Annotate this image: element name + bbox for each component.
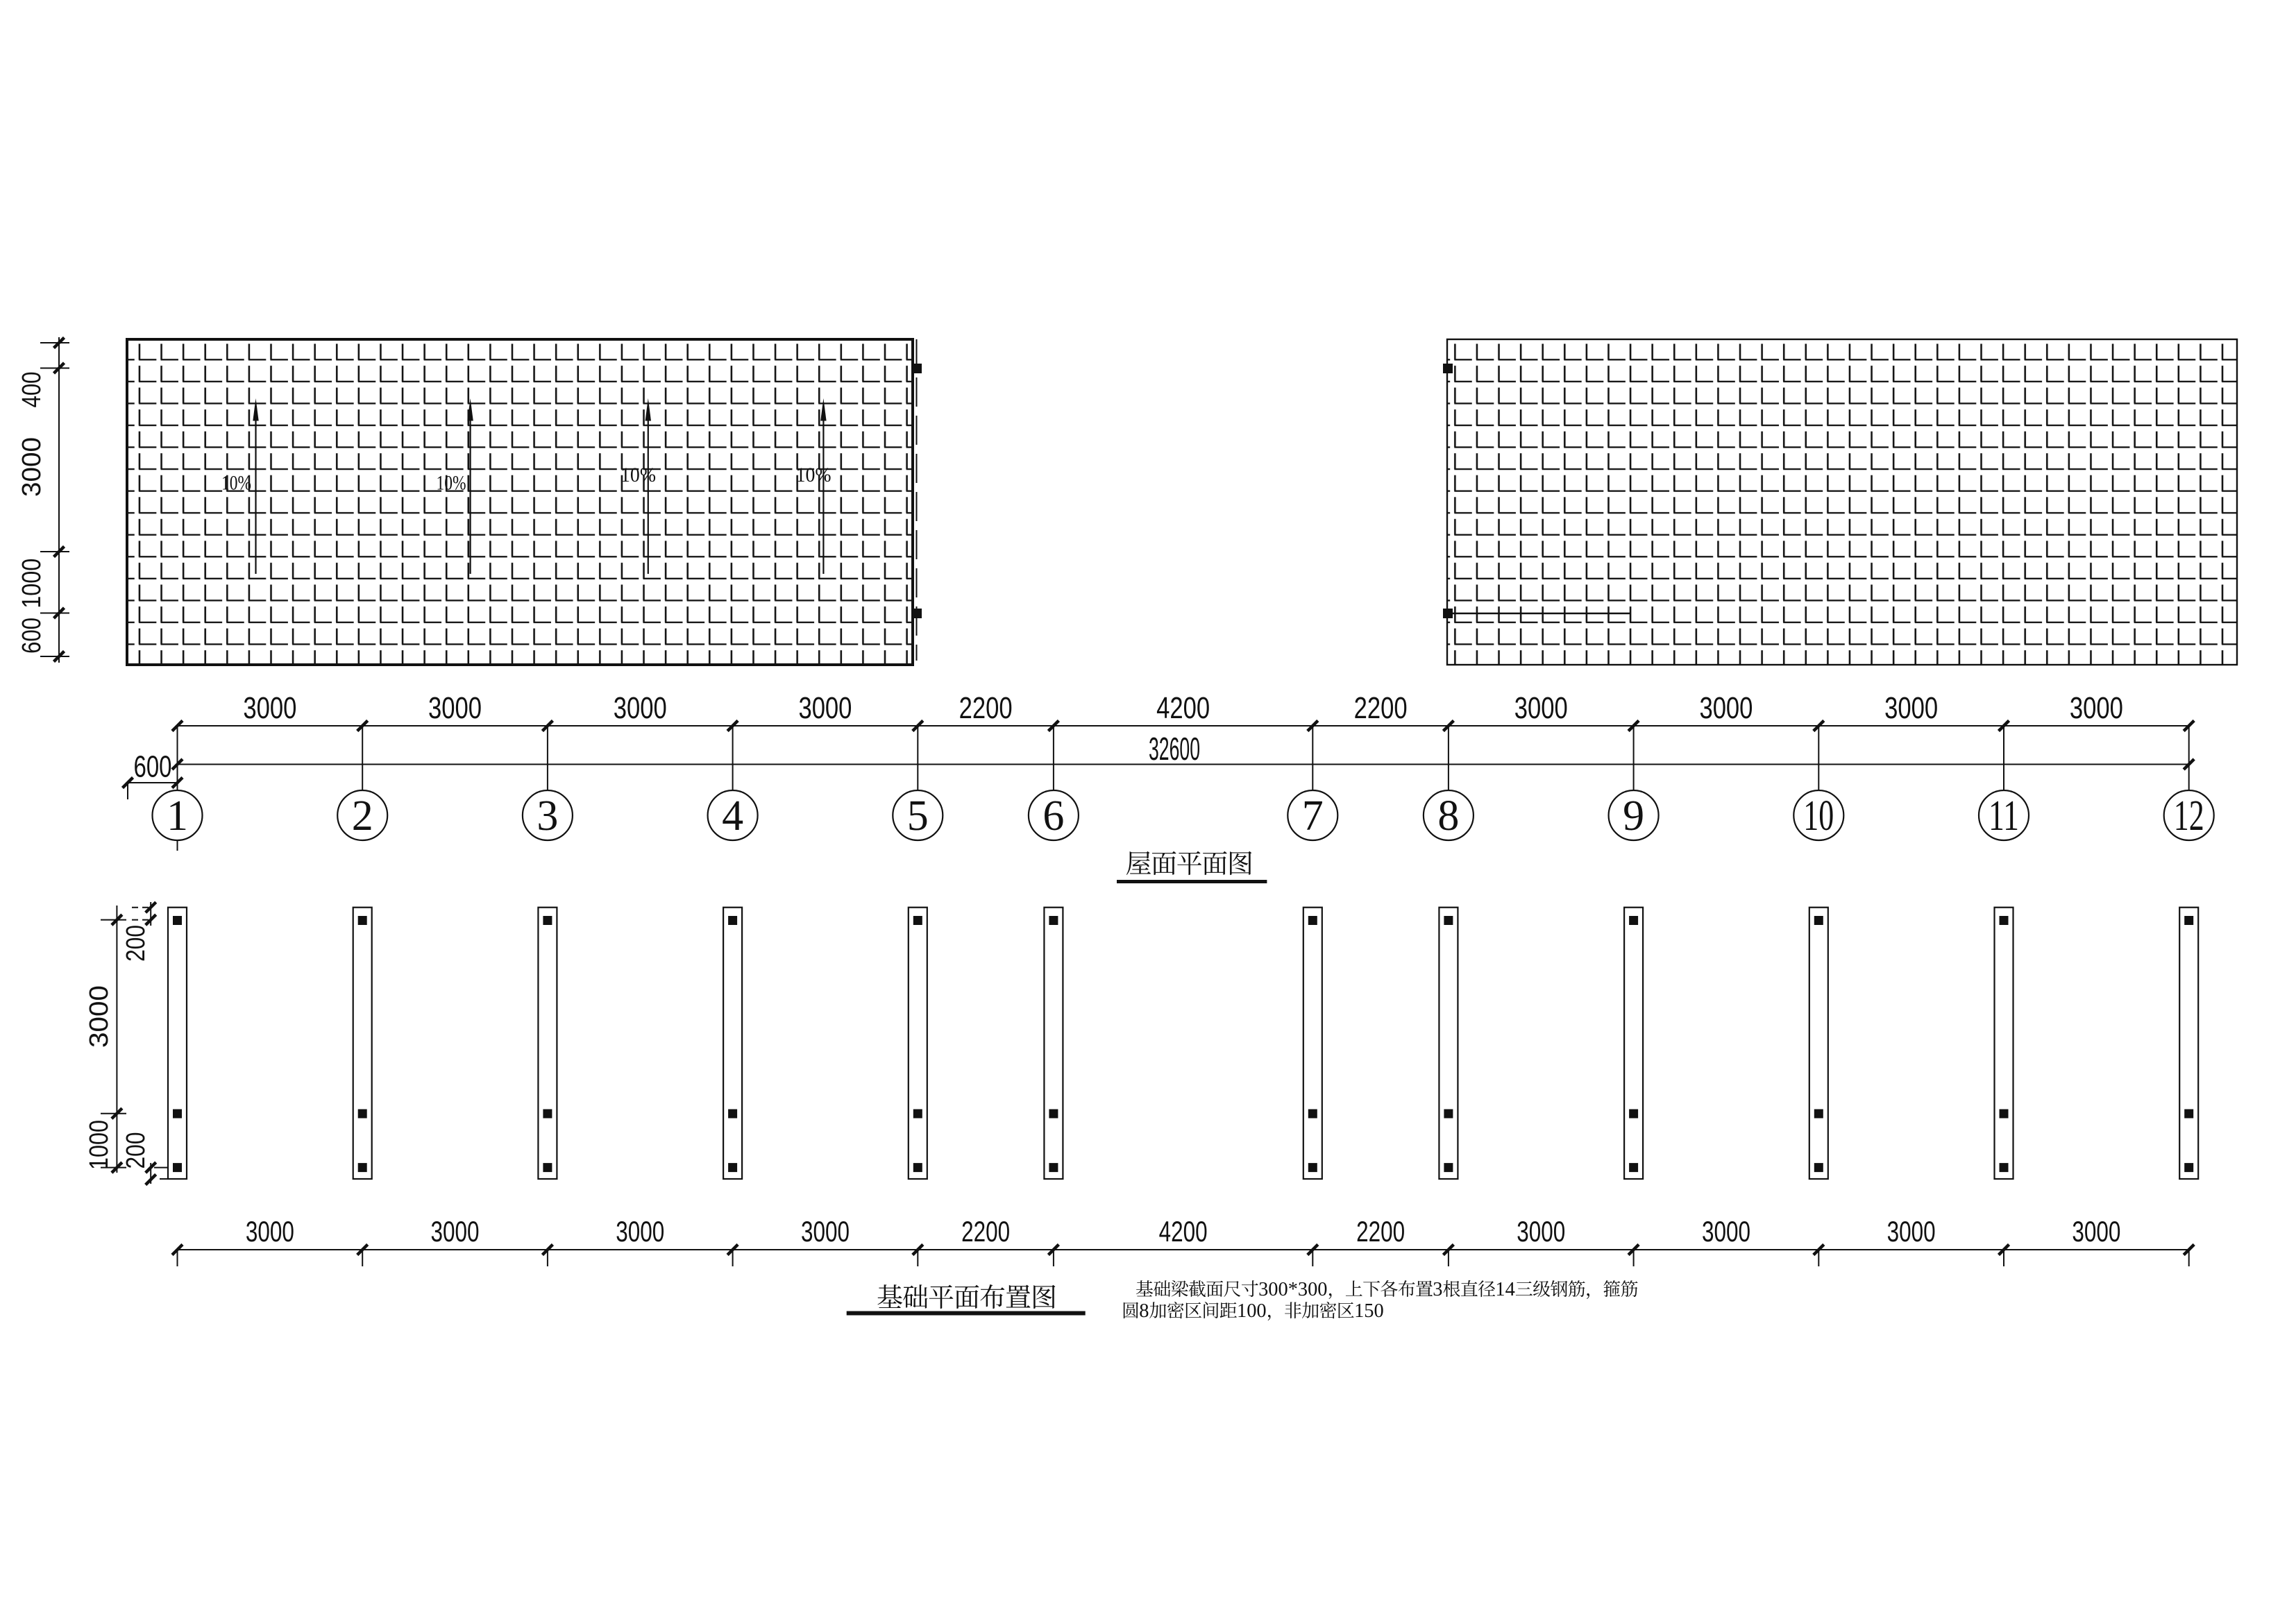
svg-text:2200: 2200 — [1356, 1215, 1405, 1248]
svg-text:600: 600 — [17, 618, 47, 654]
svg-text:12: 12 — [2174, 792, 2204, 840]
svg-text:2: 2 — [352, 792, 373, 840]
svg-text:3000: 3000 — [1514, 691, 1568, 725]
svg-text:3000: 3000 — [2072, 1215, 2120, 1248]
svg-text:10%: 10% — [437, 472, 466, 495]
svg-text:4200: 4200 — [1159, 1215, 1208, 1248]
svg-text:10%: 10% — [621, 464, 656, 486]
svg-text:3000: 3000 — [428, 691, 482, 725]
svg-text:8: 8 — [1437, 792, 1459, 840]
svg-text:10: 10 — [1803, 792, 1834, 840]
svg-text:4200: 4200 — [1156, 691, 1210, 725]
svg-text:3: 3 — [1433, 1278, 1442, 1300]
svg-text:4: 4 — [722, 792, 743, 840]
svg-text:150: 150 — [1354, 1300, 1384, 1322]
svg-text:1000: 1000 — [85, 1120, 114, 1170]
svg-text:3000: 3000 — [431, 1215, 480, 1248]
svg-text:1000: 1000 — [17, 559, 47, 609]
svg-text:2200: 2200 — [959, 691, 1013, 725]
svg-text:3000: 3000 — [246, 1215, 294, 1248]
svg-text:3000: 3000 — [614, 691, 667, 725]
svg-text:3000: 3000 — [616, 1215, 664, 1248]
svg-text:6: 6 — [1043, 792, 1064, 840]
svg-text:400: 400 — [17, 372, 47, 408]
svg-text:7: 7 — [1302, 792, 1324, 840]
svg-text:1: 1 — [167, 792, 188, 840]
svg-text:3000: 3000 — [801, 1215, 850, 1248]
svg-text:200: 200 — [121, 1132, 151, 1169]
svg-text:3000: 3000 — [1699, 691, 1753, 725]
svg-text:11: 11 — [1989, 792, 2019, 840]
svg-text:3000: 3000 — [798, 691, 852, 725]
svg-text:3000: 3000 — [1887, 1215, 1936, 1248]
svg-text:300*300: 300*300 — [1258, 1278, 1327, 1300]
svg-text:3000: 3000 — [2070, 691, 2123, 725]
svg-text:3000: 3000 — [243, 691, 296, 725]
svg-text:3: 3 — [537, 792, 558, 840]
svg-text:3000: 3000 — [17, 437, 47, 497]
svg-text:3000: 3000 — [85, 985, 114, 1048]
svg-text:2200: 2200 — [1354, 691, 1408, 725]
svg-text:3000: 3000 — [1702, 1215, 1750, 1248]
svg-text:5: 5 — [907, 792, 929, 840]
svg-text:9: 9 — [1623, 792, 1644, 840]
svg-text:3000: 3000 — [1517, 1215, 1565, 1248]
svg-text:200: 200 — [121, 925, 151, 962]
svg-text:2200: 2200 — [961, 1215, 1010, 1248]
svg-text:10%: 10% — [221, 472, 251, 495]
svg-text:10%: 10% — [796, 464, 832, 486]
svg-text:600: 600 — [134, 750, 172, 784]
svg-text:8: 8 — [1139, 1300, 1149, 1322]
svg-text:14: 14 — [1495, 1278, 1515, 1300]
svg-text:100: 100 — [1237, 1300, 1267, 1322]
svg-text:3000: 3000 — [1884, 691, 1938, 725]
svg-text:32600: 32600 — [1149, 731, 1200, 767]
